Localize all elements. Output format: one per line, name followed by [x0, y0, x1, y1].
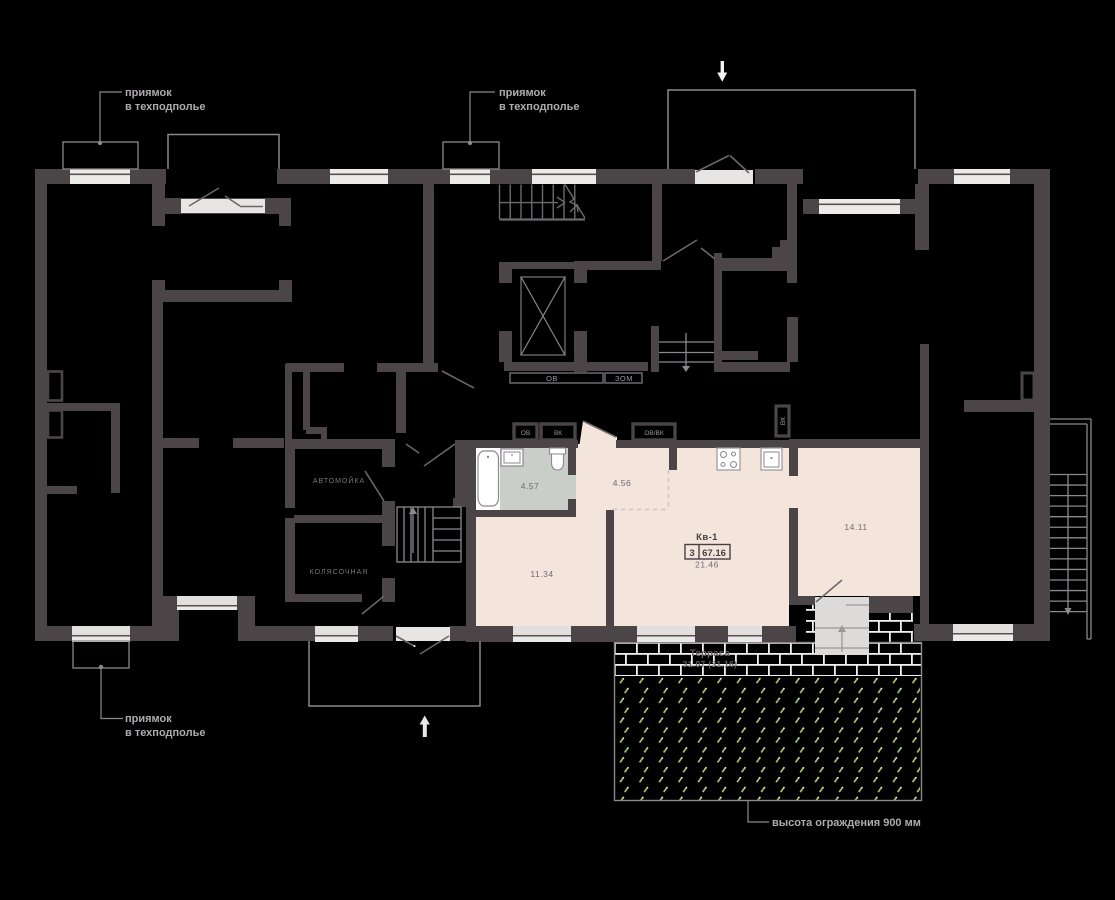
- svg-text:67.16: 67.16: [702, 548, 726, 559]
- svg-text:Терраса: Терраса: [690, 648, 731, 659]
- svg-text:приямок: приямок: [499, 87, 546, 99]
- svg-text:Кв-1: Кв-1: [696, 532, 718, 543]
- svg-text:ЗОМ: ЗОМ: [615, 374, 633, 383]
- svg-text:ОВ/ВК: ОВ/ВК: [644, 430, 664, 437]
- svg-text:ВК: ВК: [554, 430, 562, 437]
- svg-text:КОЛЯСОЧНАЯ: КОЛЯСОЧНАЯ: [310, 569, 369, 576]
- svg-text:ВК: ВК: [780, 417, 787, 425]
- svg-text:ОВ: ОВ: [521, 430, 530, 437]
- svg-text:11.34: 11.34: [530, 569, 553, 579]
- svg-text:21.46: 21.46: [695, 560, 719, 570]
- svg-text:в техподполье: в техподполье: [125, 101, 205, 113]
- svg-text:14.11: 14.11: [844, 522, 867, 532]
- svg-text:4.57: 4.57: [521, 481, 540, 491]
- svg-text:АВТОМОЙКА: АВТОМОЙКА: [313, 476, 365, 485]
- svg-text:31.07 (31.16): 31.07 (31.16): [683, 659, 737, 669]
- svg-text:4.56: 4.56: [613, 478, 632, 488]
- svg-text:приямок: приямок: [125, 713, 172, 725]
- svg-text:в техподполье: в техподполье: [125, 727, 205, 739]
- svg-text:приямок: приямок: [125, 87, 172, 99]
- svg-text:высота ограждения 900 мм: высота ограждения 900 мм: [772, 817, 921, 829]
- svg-text:ОВ: ОВ: [546, 374, 558, 383]
- svg-text:3: 3: [689, 548, 694, 559]
- svg-text:в техподполье: в техподполье: [499, 101, 579, 113]
